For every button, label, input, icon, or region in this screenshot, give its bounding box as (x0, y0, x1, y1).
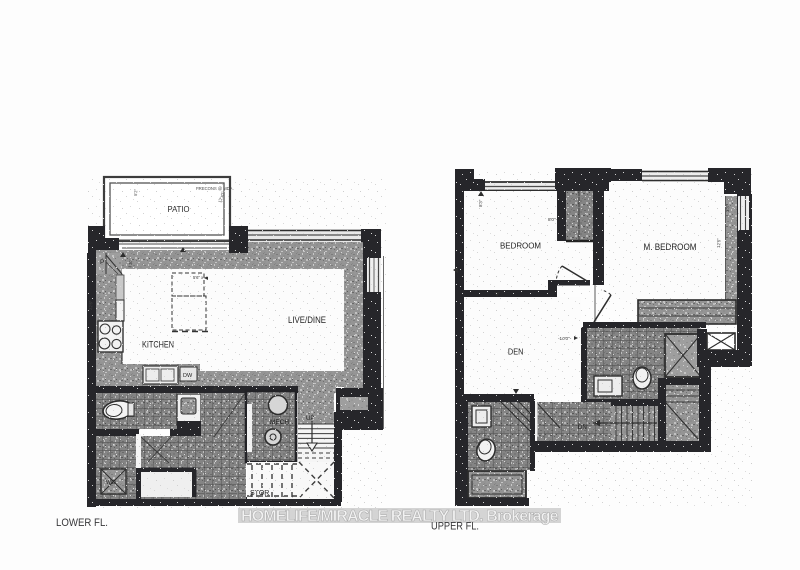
svg-text:LOWER FL.: LOWER FL. (56, 517, 108, 529)
svg-text:UPPER FL.: UPPER FL. (431, 521, 479, 533)
svg-text:HOMELIFE/MIRACLE REALTY LTD. B: HOMELIFE/MIRACLE REALTY LTD. Brokerage (241, 508, 559, 525)
